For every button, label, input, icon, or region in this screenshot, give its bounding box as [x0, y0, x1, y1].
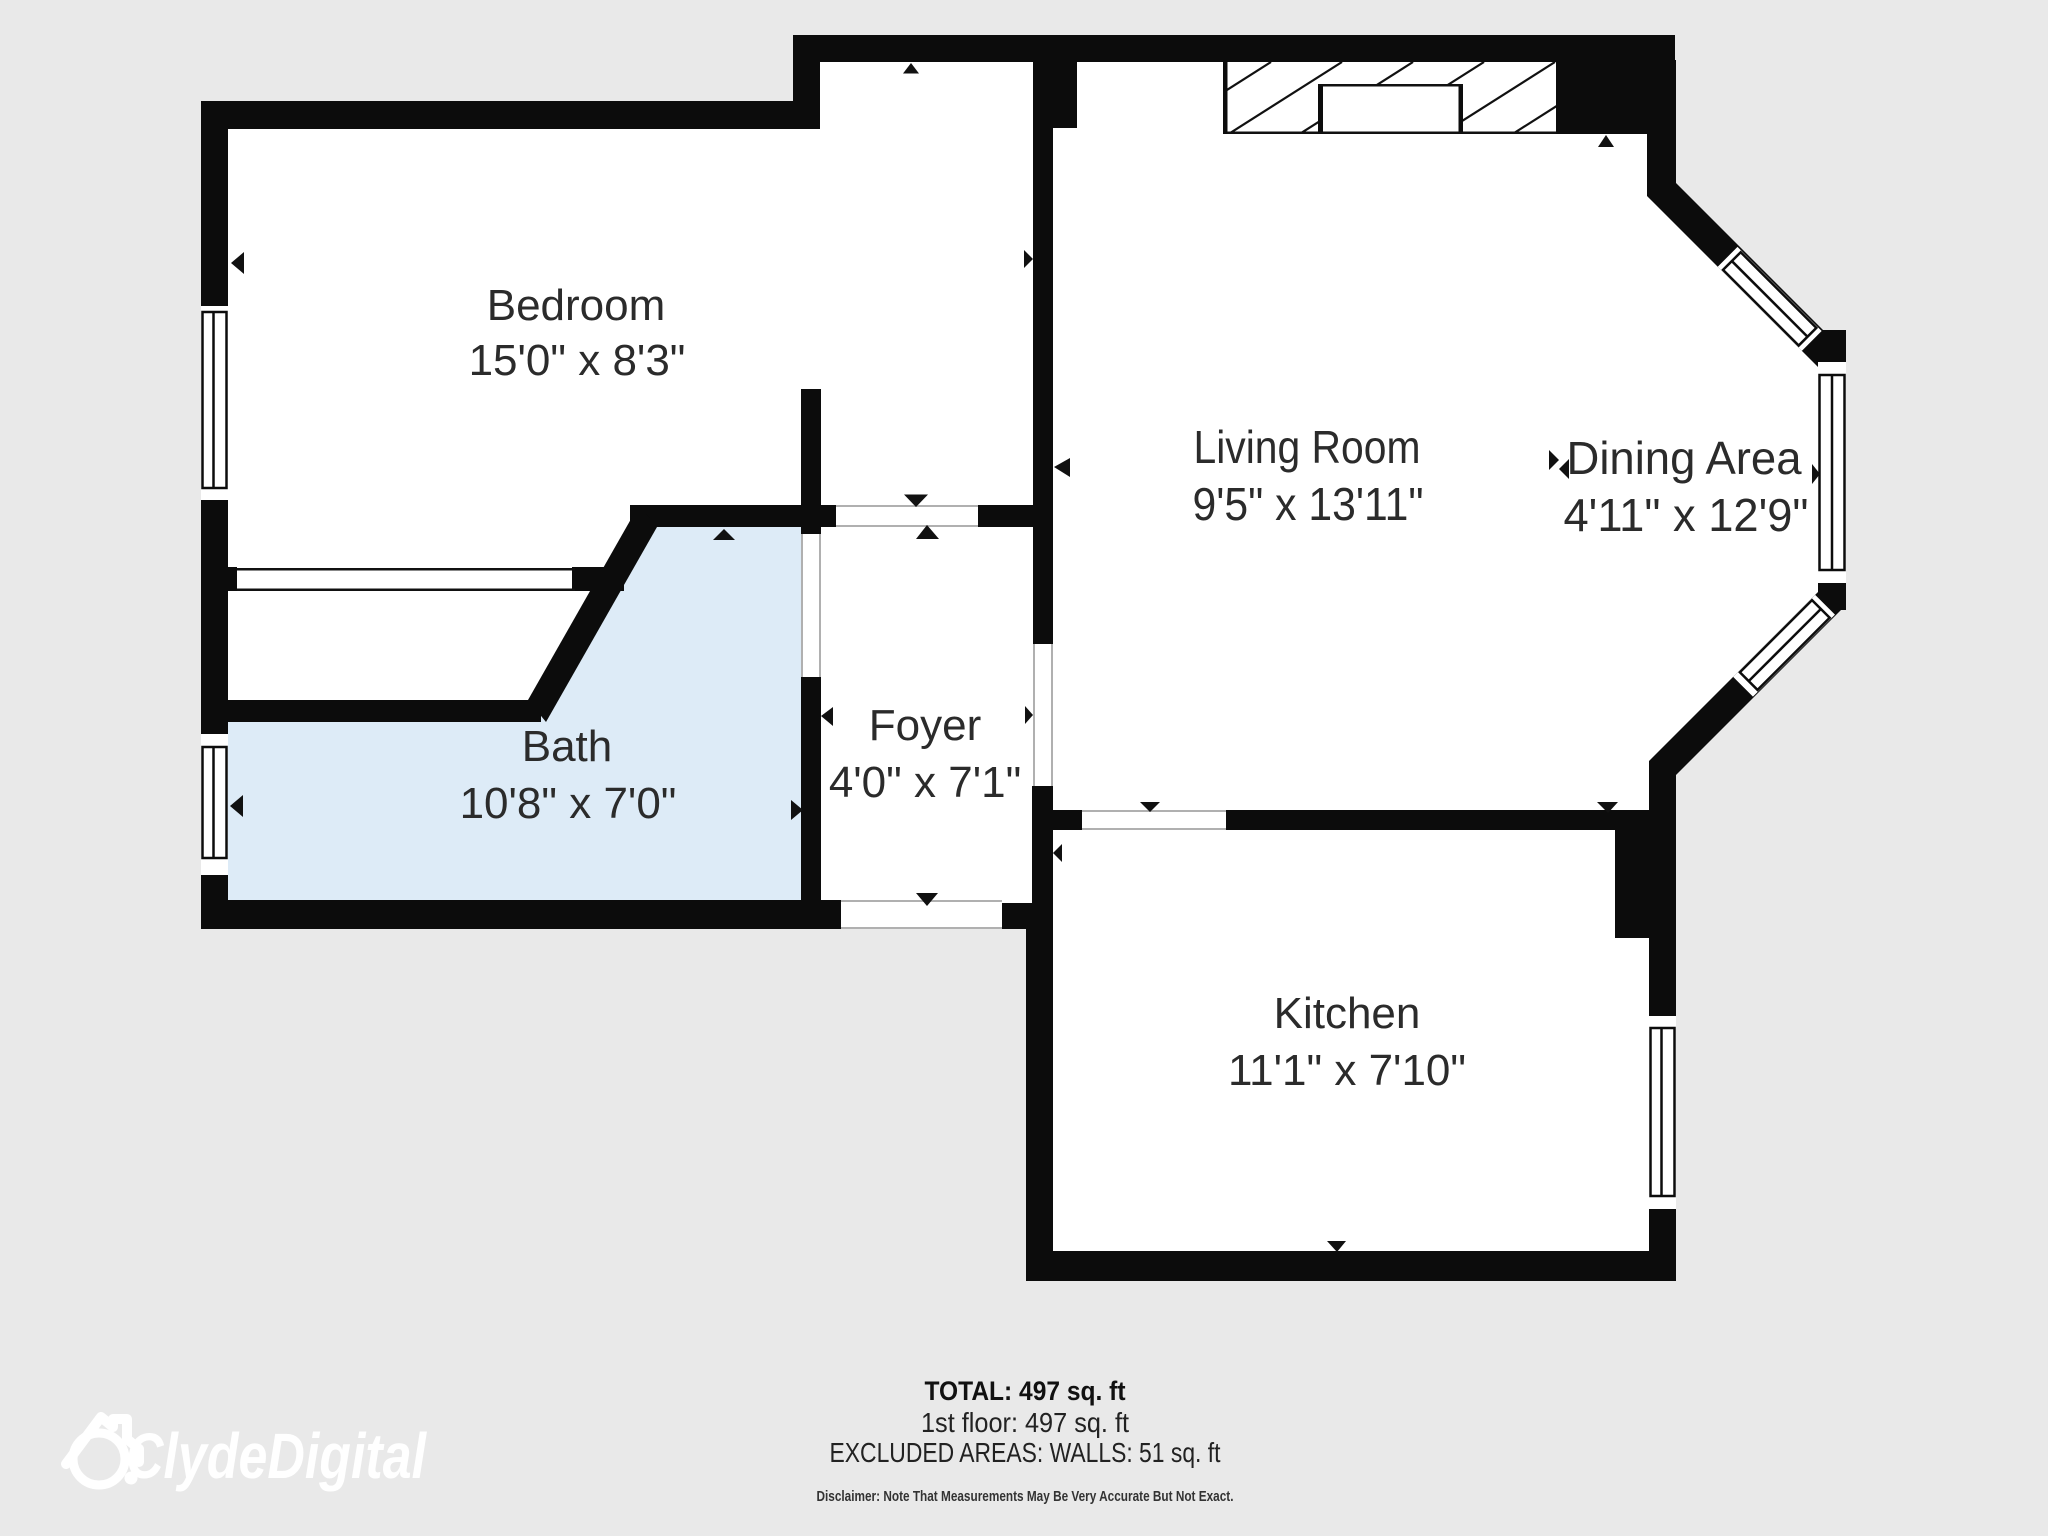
svg-text:1st floor: 497 sq. ft: 1st floor: 497 sq. ft [921, 1407, 1129, 1438]
svg-text:EXCLUDED AREAS: WALLS: 51 sq.: EXCLUDED AREAS: WALLS: 51 sq. ft [830, 1437, 1221, 1468]
svg-text:Foyer: Foyer [869, 701, 981, 750]
svg-text:Bedroom: Bedroom [487, 281, 666, 330]
svg-text:Bath: Bath [522, 722, 613, 771]
svg-text:15'0" x 8'3": 15'0" x 8'3" [469, 336, 686, 385]
svg-text:11'1" x 7'10": 11'1" x 7'10" [1228, 1046, 1466, 1095]
svg-text:4'0" x 7'1": 4'0" x 7'1" [829, 758, 1021, 807]
svg-text:ClydeDigital: ClydeDigital [126, 1420, 427, 1492]
svg-text:10'8" x 7'0": 10'8" x 7'0" [460, 779, 677, 828]
svg-text:Disclaimer: Note That Measurem: Disclaimer: Note That Measurements May B… [817, 1489, 1234, 1505]
svg-text:Living Room: Living Room [1194, 421, 1421, 473]
svg-text:TOTAL: 497 sq. ft: TOTAL: 497 sq. ft [925, 1376, 1126, 1406]
svg-text:Dining Area: Dining Area [1567, 432, 1802, 484]
svg-text:Kitchen: Kitchen [1274, 989, 1421, 1038]
svg-text:9'5" x 13'11": 9'5" x 13'11" [1193, 478, 1424, 530]
svg-text:4'11" x 12'9": 4'11" x 12'9" [1564, 489, 1809, 541]
